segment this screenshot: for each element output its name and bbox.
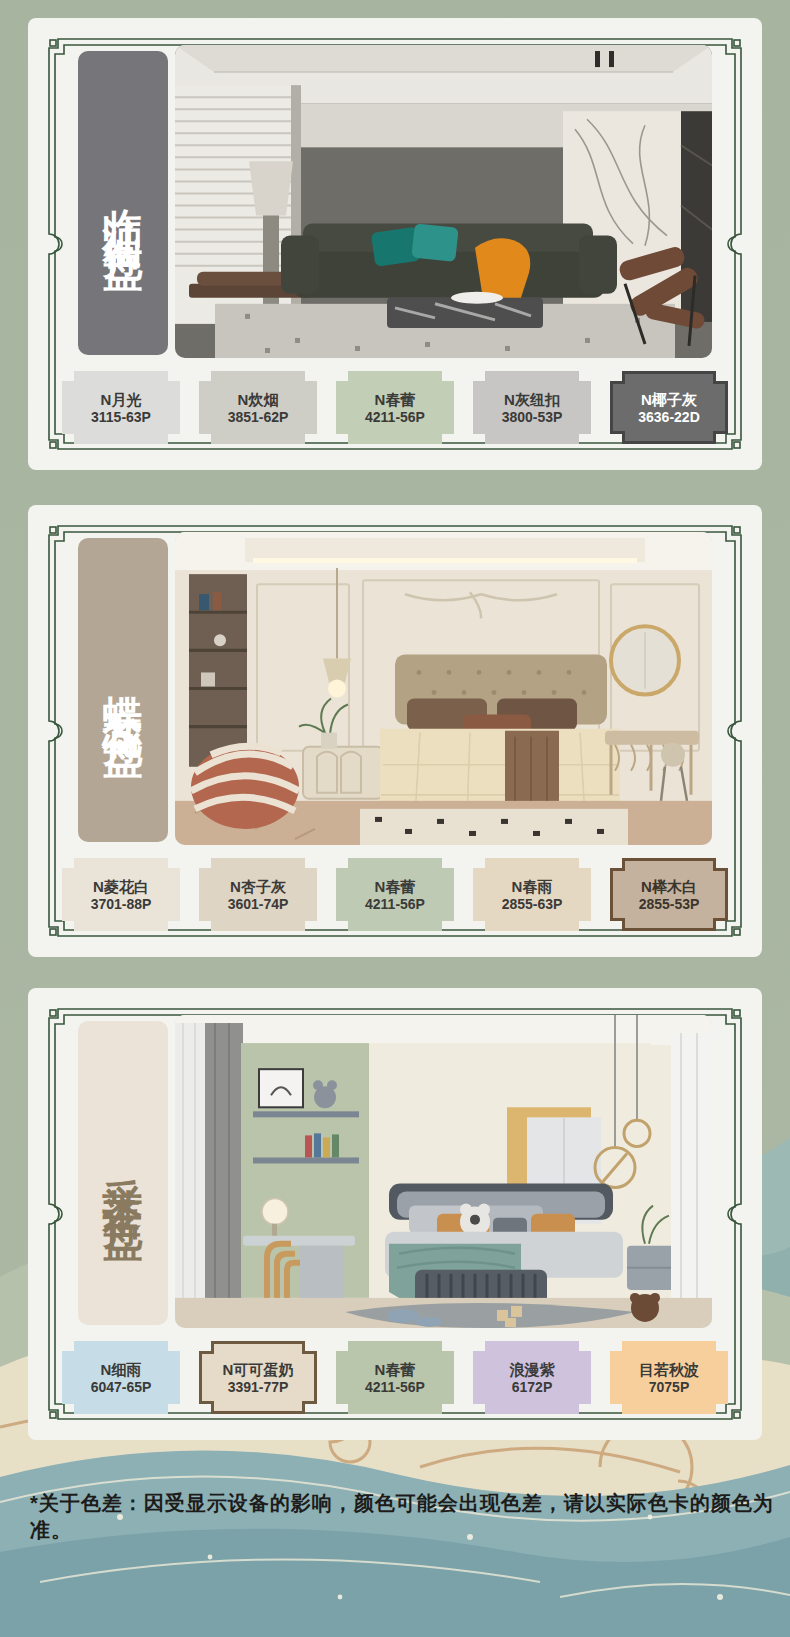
color-disclaimer-note: *关于色差：因受显示设备的影响，颜色可能会出现色差，请以实际色卡的颜色为准。: [30, 1490, 790, 1544]
swatch-name: N春雨: [512, 879, 553, 894]
swatch-name: N月光: [101, 392, 142, 407]
palette-title: 临江仙色盘: [103, 176, 143, 231]
palette-card-cailianzi: 采莲子色盘: [28, 988, 762, 1440]
color-swatch: N灰纽扣3800-53P: [473, 371, 591, 444]
swatch-name: N杏子灰: [230, 879, 286, 894]
color-swatch: N春蕾4211-56P: [336, 371, 454, 444]
color-swatch: N杏子灰3601-74P: [199, 858, 317, 931]
color-swatch: N可可蛋奶3391-77P: [199, 1341, 317, 1414]
swatch-name: N春蕾: [375, 879, 416, 894]
modern-living-room-photo: [175, 45, 712, 358]
color-swatch: 浪漫紫6172P: [473, 1341, 591, 1414]
palette-title-plaque: 采莲子色盘: [78, 1021, 168, 1325]
swatch-code: 7075P: [649, 1380, 689, 1394]
swatch-name: N炊烟: [238, 392, 279, 407]
color-swatch: N春雨2855-63P: [473, 858, 591, 931]
swatch-name: N榉木白: [641, 879, 697, 894]
color-swatch: N炊烟3851-62P: [199, 371, 317, 444]
swatch-code: 4211-56P: [365, 1380, 425, 1394]
color-swatch: 目若秋波7075P: [610, 1341, 728, 1414]
color-swatch: N椰子灰3636-22D: [610, 371, 728, 444]
color-swatch: N春蕾4211-56P: [336, 1341, 454, 1414]
palette-title-plaque: 临江仙色盘: [78, 51, 168, 355]
swatch-code: 4211-56P: [365, 410, 425, 424]
swatch-name: 浪漫紫: [510, 1362, 555, 1377]
swatch-code: 3800-53P: [502, 410, 563, 424]
palette-title: 蝶恋花色盘: [103, 663, 143, 718]
swatch-code: 4211-56P: [365, 897, 425, 911]
color-swatch: N细雨6047-65P: [62, 1341, 180, 1414]
swatch-name: N灰纽扣: [504, 392, 560, 407]
swatch-code: 6047-65P: [91, 1380, 152, 1394]
swatch-code: 3701-88P: [91, 897, 152, 911]
swatch-code: 3601-74P: [228, 897, 289, 911]
swatch-name: 目若秋波: [639, 1362, 699, 1377]
swatch-name: N春蕾: [375, 1362, 416, 1377]
palette-title: 采莲子色盘: [103, 1146, 143, 1201]
swatch-name: N菱花白: [93, 879, 149, 894]
color-swatch: N菱花白3701-88P: [62, 858, 180, 931]
swatch-code: 3115-63P: [91, 410, 151, 424]
swatch-name: N细雨: [101, 1362, 142, 1377]
swatch-row: N菱花白3701-88PN杏子灰3601-74PN春蕾4211-56PN春雨28…: [28, 858, 762, 931]
swatch-name: N可可蛋奶: [223, 1362, 294, 1377]
color-swatch: N榉木白2855-53P: [610, 858, 728, 931]
swatch-code: 2855-53P: [639, 897, 700, 911]
paint-palette-poster: 临江仙色盘: [0, 0, 790, 1637]
swatch-code: 3391-77P: [228, 1380, 289, 1394]
swatch-code: 3636-22D: [638, 410, 700, 424]
swatch-code: 6172P: [512, 1380, 552, 1394]
palette-title-plaque: 蝶恋花色盘: [78, 538, 168, 842]
color-swatch: N春蕾4211-56P: [336, 858, 454, 931]
swatch-row: N月光3115-63PN炊烟3851-62PN春蕾4211-56PN灰纽扣380…: [28, 371, 762, 444]
french-cream-bedroom-photo: [175, 532, 712, 845]
swatch-name: N椰子灰: [641, 392, 697, 407]
palette-card-linjiangxian: 临江仙色盘: [28, 18, 762, 470]
swatch-row: N细雨6047-65PN可可蛋奶3391-77PN春蕾4211-56P浪漫紫61…: [28, 1341, 762, 1414]
kids-bedroom-photo: [175, 1015, 712, 1328]
swatch-code: 3851-62P: [228, 410, 289, 424]
palette-card-dielianhua: 蝶恋花色盘: [28, 505, 762, 957]
swatch-code: 2855-63P: [502, 897, 563, 911]
swatch-name: N春蕾: [375, 392, 416, 407]
color-swatch: N月光3115-63P: [62, 371, 180, 444]
